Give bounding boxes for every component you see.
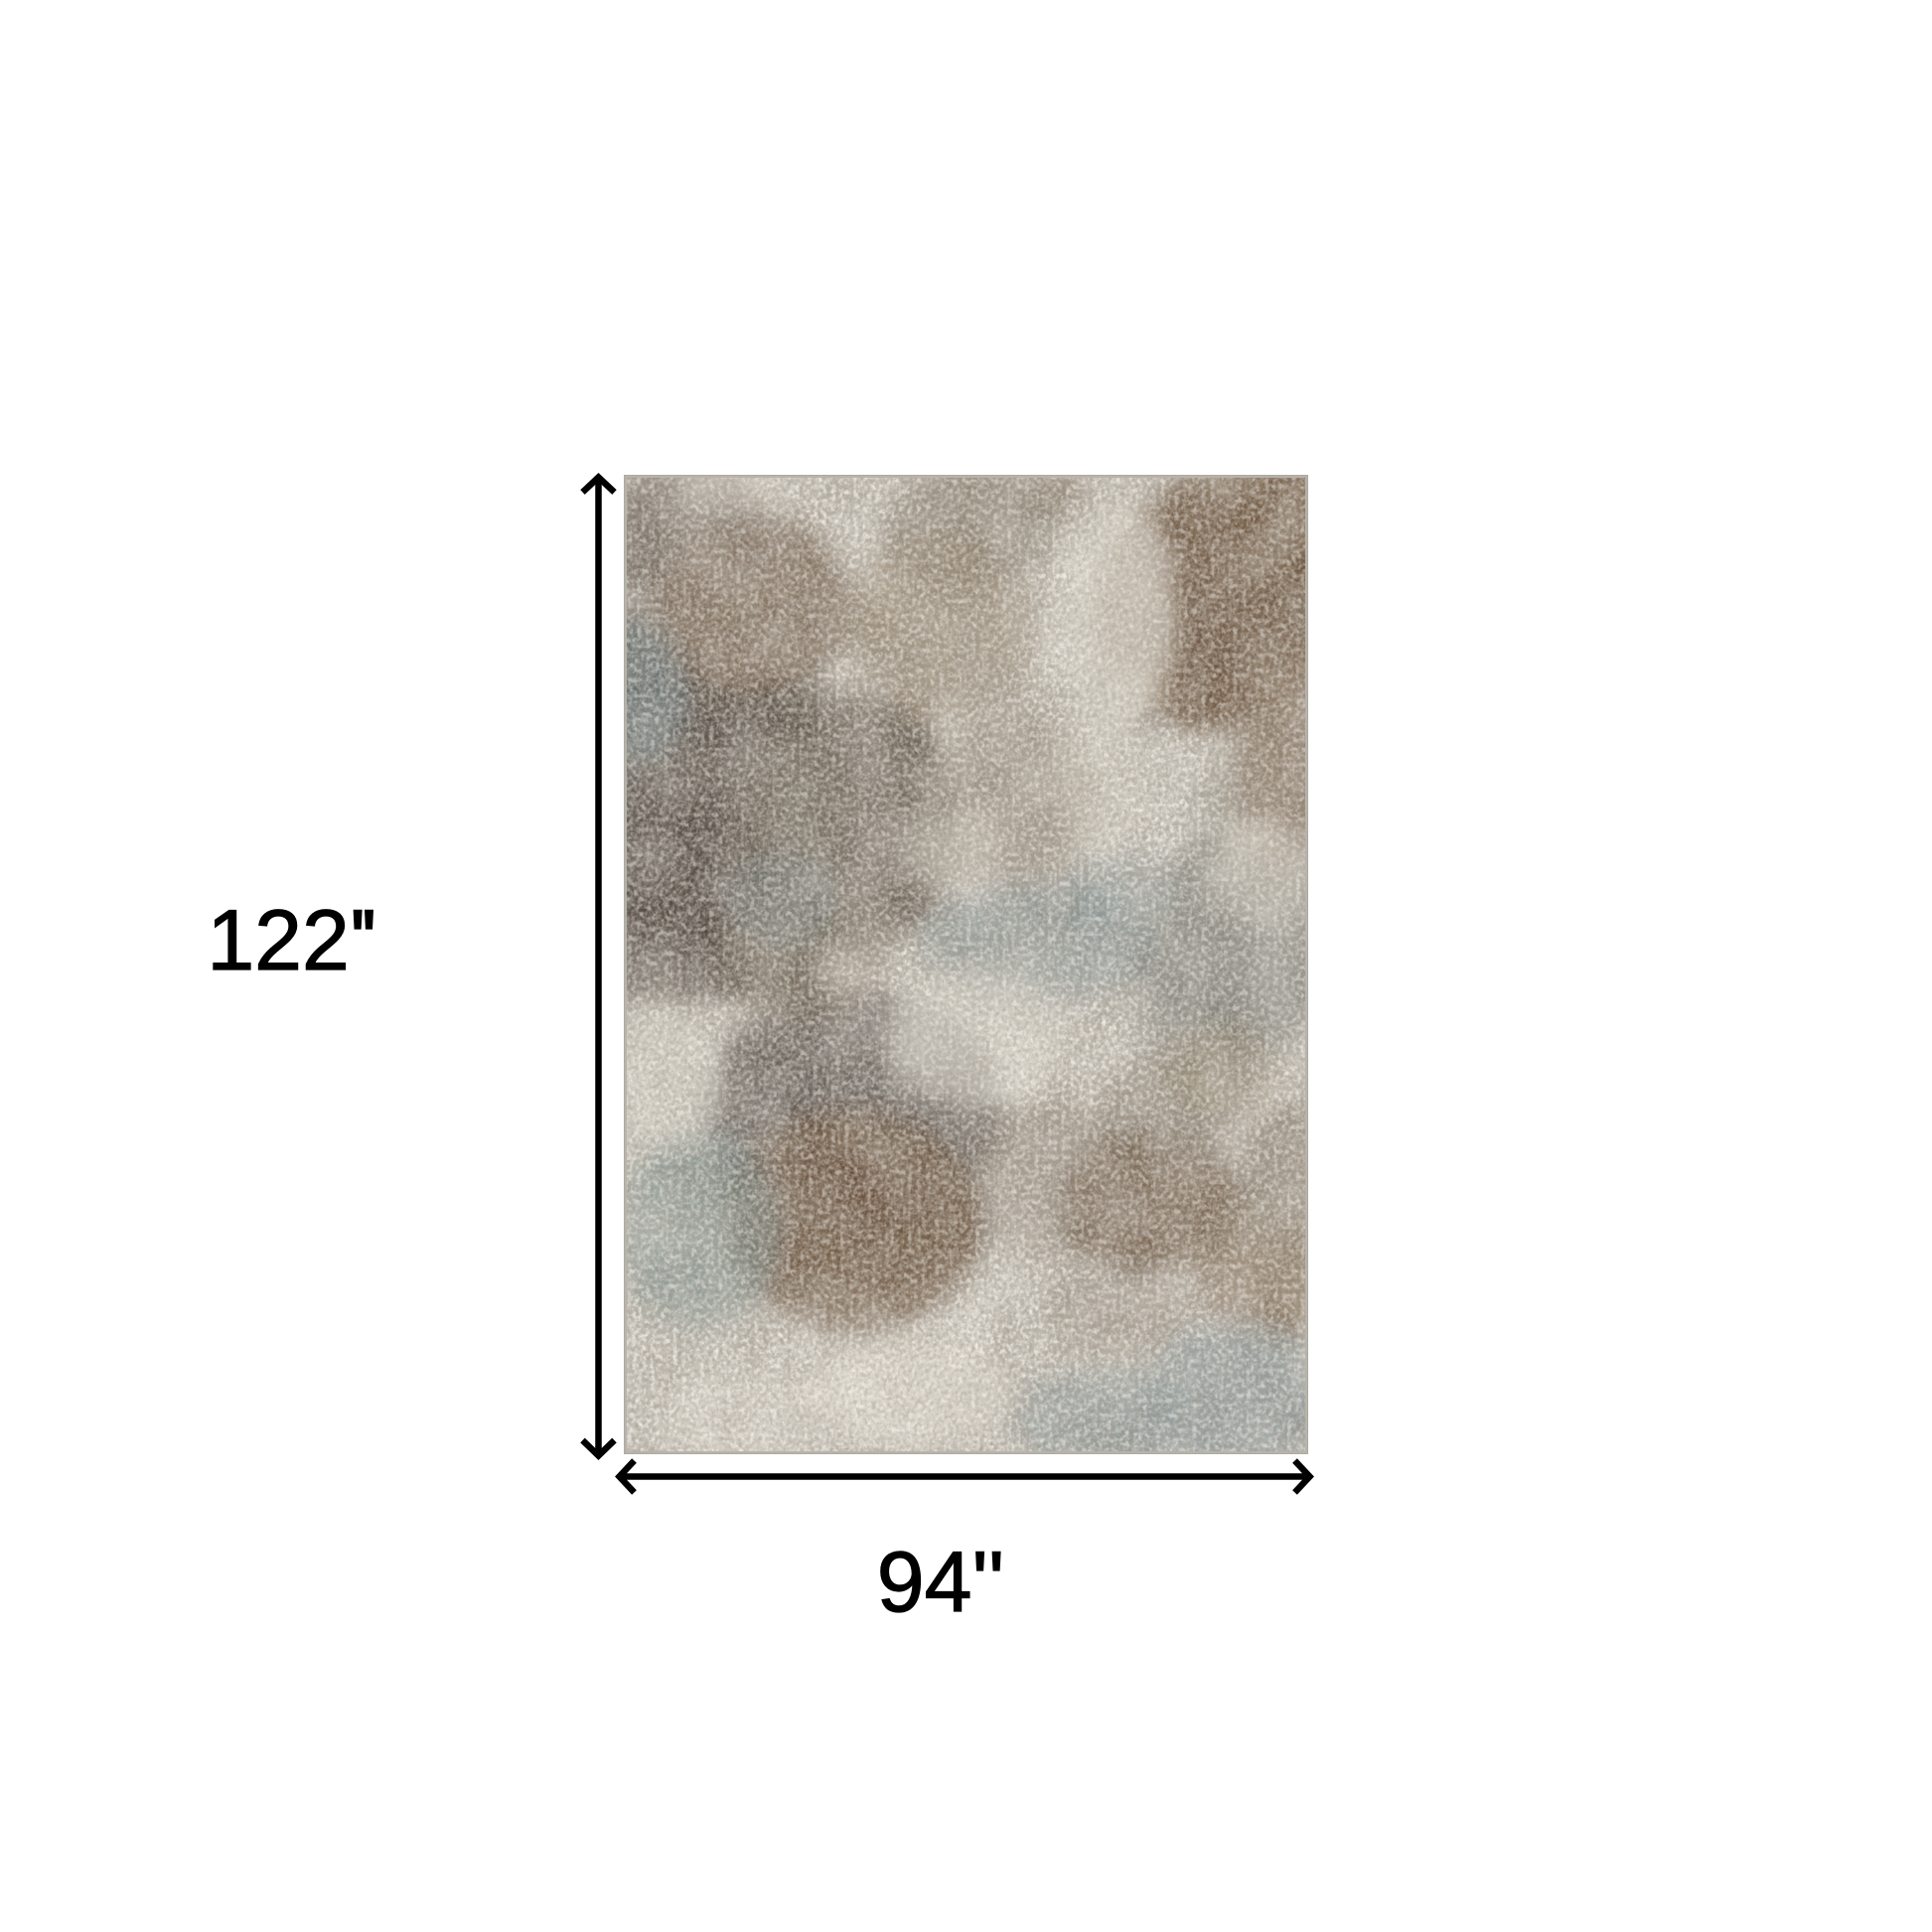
svg-text:94'': 94'': [877, 1535, 1005, 1630]
svg-text:122'': 122'': [207, 893, 376, 988]
